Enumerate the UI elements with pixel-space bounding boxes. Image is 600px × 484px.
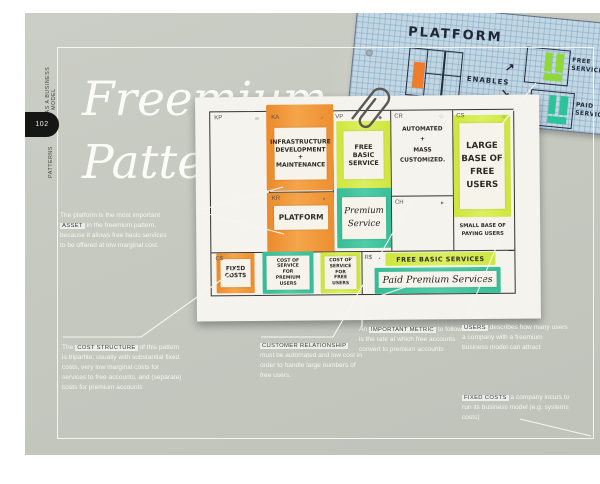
sticky-cost-premium-users: COST OF SERVICE FOR PREMIUM USERS [262,251,313,293]
annotation-users: USERS describes how many users a company… [462,323,570,353]
revenue-streams-icon: ▪ [378,256,380,262]
revenue-paid-note: Paid Premium Services [383,273,493,285]
cost-free-users-note: COST OF SERVICE FOR FREE USERS [324,258,356,287]
label-cost-structure: C$ [215,256,223,262]
customer-segments-icon: ☺ [501,114,506,120]
annotation-text: must be automated and low cost in order … [260,352,362,379]
key-activities-note: INFRASTRUCTURE DEVELOPMENT + MAINTENANCE [270,138,331,169]
annotation-highlight: IMPORTANT METRIC [369,327,436,333]
label-channels: CH [395,200,404,206]
small-base-paying-users-note: SMALL BASE OF PAYING USERS [454,222,511,239]
sticky-cost-free-users: COST OF SERVICE FOR FREE USERS [320,252,360,293]
key-resources-icon: ♦ [323,196,326,202]
annotation-platform: The platform is the most important ASSET… [60,211,172,251]
customer-relationship-note: AUTOMATED + MASS CUSTOMIZED. [393,124,451,166]
label-key-activities: KA [271,115,279,121]
annotation-highlight: CUSTOMER RELATIONSHIP [260,343,348,349]
free-basic-service-note: FREE BASIC SERVICE [348,143,378,167]
grid-line [391,195,453,197]
annotation-cost-structure: The COST STRUCTURE of this pattern is tr… [62,343,184,393]
annotation-highlight: COST STRUCTURE [75,345,137,351]
highlight-free-basic-services: FREE BASIC SERVICES [385,252,495,266]
annotation-highlight: FIXED COSTS [462,395,509,401]
annotation-text: The [62,344,75,351]
annotation-highlight: USERS [462,325,488,331]
premium-service-note: Premium Service [344,205,384,231]
label-revenue-streams: R$ [364,255,372,261]
annotation-text: The platform is the most important [60,212,160,219]
cost-premium-users-note: COST OF SERVICE FOR PREMIUM USERS [266,258,309,287]
label-key-partners: KP [214,115,222,121]
large-base-free-users-note: LARGE BASE OF FREE USERS [461,140,503,192]
page-background: PLATFORM ENABLES ↗ ↘ FREE SERVICE PAID [25,13,600,455]
annotation-text: of this pattern is tripartite: usually w… [62,344,181,391]
section-edge-label: PATTERNS [48,142,54,182]
cost-structure-icon: ✂ [348,256,352,262]
sketch-platform-label: PLATFORM [408,25,503,46]
annotation-fixed-costs: FIXED COSTS a company incurs to run its … [462,393,570,423]
annotation-metric: An IMPORTANT METRIC to follow is the rat… [359,325,463,355]
channels-icon: ► [440,200,445,206]
sticky-large-base-free-users: LARGE BASE OF FREE USERS [453,115,511,217]
book-page-photo: PLATFORM ENABLES ↗ ↘ FREE SERVICE PAID [0,0,600,484]
label-key-resources: KR [272,196,280,202]
key-activities-icon: ✓ [320,115,324,121]
page-number-tab: 102 [25,112,59,137]
annotation-text: An [359,326,369,333]
annotation-highlight: ASSET [60,223,85,229]
sticky-premium-service: Premium Service [337,188,392,248]
fixed-costs-note: FIXED COSTS [225,266,247,281]
annotation-customer-relationship: CUSTOMER RELATIONSHIP must be automated … [260,341,364,381]
key-resources-note: PLATFORM [279,213,324,223]
grid-line [361,251,363,294]
highlight-paid-premium-services: Paid Premium Services [375,267,501,294]
page-number: 102 [35,121,48,128]
key-partners-icon: ∞ [255,116,259,122]
revenue-free-note: FREE BASIC SERVICES [396,254,484,263]
label-customer-relationships: CR [394,114,403,120]
customer-relationships-icon: ♡ [439,114,444,120]
label-customer-segments: CS [456,113,464,119]
